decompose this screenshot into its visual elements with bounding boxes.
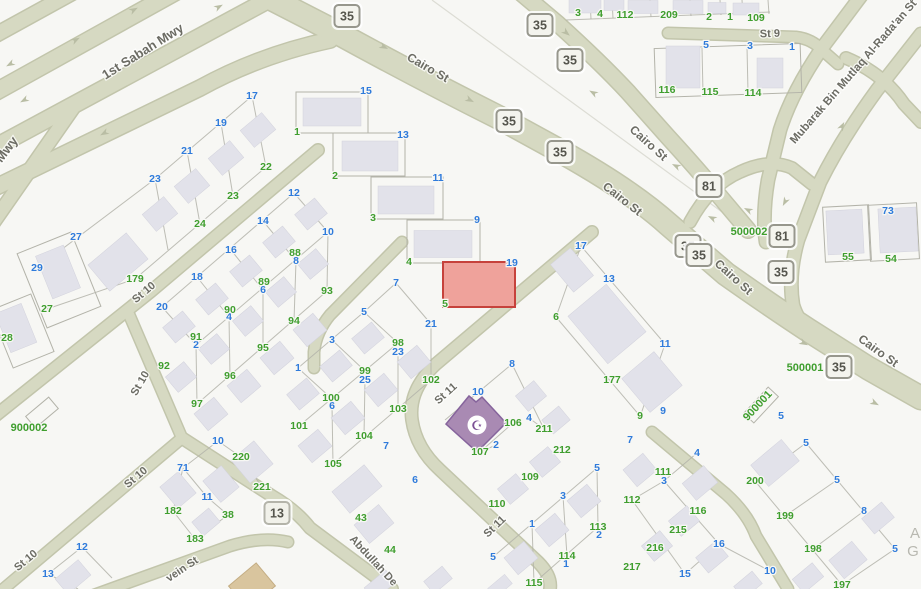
building-footprint	[826, 209, 864, 255]
route-shield-35: 35	[333, 4, 361, 29]
parcel-number-blue: 73	[882, 205, 894, 217]
parcel-number-blue: 19	[215, 117, 227, 129]
parcel-number-green: 112	[617, 9, 634, 21]
svg-text:35: 35	[340, 10, 354, 24]
parcel-number-blue: 17	[246, 90, 258, 102]
parcel-number-blue: 23	[149, 173, 161, 185]
parcel-number-blue: 5	[361, 306, 367, 318]
parcel-number-green: 115	[526, 577, 543, 589]
parcel-number-green: 92	[158, 360, 170, 372]
parcel-number-blue: 18	[191, 271, 203, 283]
parcel-number-blue: 29	[31, 262, 43, 274]
parcel-number-green: 9	[637, 410, 643, 422]
partial-labels-layer: AG	[907, 525, 920, 560]
parcel-number-blue: 13	[42, 568, 54, 580]
route-shield-35: 35	[767, 260, 795, 285]
parcel-number-blue: 5	[892, 543, 898, 555]
parcel-number-green: 116	[659, 84, 676, 96]
parcel-number-green: 198	[804, 543, 822, 555]
parcel-number-blue: 12	[288, 187, 300, 199]
block-id-label: 500001	[787, 362, 824, 374]
parcel-number-green: 110	[489, 498, 506, 510]
parcel-number-blue: 1	[529, 518, 535, 530]
parcel-number-green: 96	[224, 370, 236, 382]
parcel-number-green: 217	[623, 561, 641, 573]
parcel-number-green: 200	[746, 475, 764, 487]
parcel-number-green: 101	[290, 420, 308, 432]
parcel-number-green: 106	[504, 417, 522, 429]
parcel-number-green: 91	[190, 331, 202, 343]
parcel-number-green: 211	[536, 423, 553, 435]
parcel-number-blue: 5	[490, 551, 496, 563]
parcel-number-blue: 15	[360, 85, 372, 97]
parcel-number-green: 109	[521, 471, 539, 483]
route-shield-35: 35	[685, 243, 713, 268]
parcel-number-blue: 10	[472, 386, 484, 398]
svg-text:35: 35	[533, 19, 547, 33]
block-id-label: 900002	[11, 422, 48, 434]
parcel-number-blue: 15	[679, 568, 691, 580]
parcel-number-blue: 8	[861, 505, 867, 517]
parcel-number-blue: 27	[70, 231, 82, 243]
parcel-number-green: 38	[222, 509, 234, 521]
parcel-number-green: 107	[471, 446, 489, 458]
parcel-number-green: 177	[603, 374, 621, 386]
svg-text:35: 35	[563, 54, 577, 68]
parcel-number-blue: 6	[412, 474, 418, 486]
parcel-number-blue: 8	[509, 358, 515, 370]
parcel-number-green: 97	[191, 398, 203, 410]
parcel-number-blue: 13	[397, 129, 409, 141]
route-shield-35: 35	[526, 13, 554, 38]
parcel-number-green: 212	[553, 444, 571, 456]
building-footprint	[414, 231, 472, 258]
parcel-number-green: 111	[655, 466, 672, 478]
parcel-number-green: 3	[370, 212, 376, 224]
svg-text:35: 35	[692, 249, 706, 263]
parcel-number-green: 1	[294, 126, 300, 138]
parcel-number-blue: 3	[329, 334, 335, 346]
parcel-number-green: 93	[321, 285, 333, 297]
parcel-number-blue: 9	[474, 214, 480, 226]
parcel-number-green: 3	[575, 7, 581, 19]
parcel-number-green: 100	[322, 392, 340, 404]
parcel-number-green: 4	[406, 256, 412, 268]
parcel-number-green: 220	[232, 451, 250, 463]
parcel-number-blue: 3	[560, 490, 566, 502]
parcel-number-green: 115	[702, 86, 719, 98]
parcel-number-blue: 4	[694, 447, 700, 459]
parcel-number-blue: 5	[778, 410, 784, 422]
svg-text:35: 35	[774, 266, 788, 280]
partial-district-label: G	[907, 543, 919, 560]
route-shield-35: 35	[546, 140, 574, 165]
parcel-number-green: 103	[389, 403, 407, 415]
parcel-number-green: 6	[553, 311, 559, 323]
map-view[interactable]: ☪ 353535353535353535818113 1st Sabah Mwy…	[0, 0, 921, 589]
parcel-number-green: 89	[258, 276, 270, 288]
parcel-number-green: 99	[359, 365, 371, 377]
parcel-number-blue: 5	[703, 39, 709, 51]
svg-text:81: 81	[702, 180, 716, 194]
parcel-number-green: 4	[597, 8, 603, 20]
parcel-number-blue: 9	[660, 405, 666, 417]
parcel-number-green: 44	[384, 544, 396, 556]
parcel-number-blue: 21	[425, 318, 437, 330]
parcel-number-green: 104	[355, 430, 373, 442]
parcel-number-green: 221	[253, 481, 271, 493]
parcel-number-blue: 7	[393, 277, 399, 289]
parcel-number-green: 54	[885, 253, 897, 265]
parcel-number-green: 22	[260, 161, 272, 173]
parcel-number-blue: 2	[493, 439, 499, 451]
route-shield-35: 35	[495, 109, 523, 134]
parcel-number-green: 105	[324, 458, 342, 470]
parcel-number-green: 114	[559, 550, 576, 562]
parcel-number-green: 215	[669, 524, 687, 536]
parcel-number-green: 182	[164, 505, 182, 517]
svg-text:35: 35	[502, 115, 516, 129]
parcel-number-blue: 21	[181, 145, 193, 157]
route-shield-81: 81	[695, 174, 723, 199]
parcel-number-blue: 11	[659, 338, 670, 350]
parcel-number-blue: 20	[156, 301, 168, 313]
parcel-number-green: 199	[776, 510, 794, 522]
parcel-number-green: 113	[590, 521, 607, 533]
parcel-number-green: 90	[224, 304, 236, 316]
parcel-number-blue: 14	[257, 215, 269, 227]
parcel-number-green: 114	[745, 87, 762, 99]
parcel-number-green: 183	[186, 533, 204, 545]
parcel-number-blue: 13	[603, 273, 615, 285]
building-footprint	[342, 141, 398, 171]
building-footprint	[666, 46, 700, 88]
parcel-number-green: 94	[288, 315, 300, 327]
svg-text:35: 35	[553, 146, 567, 160]
parcel-number-green: 28	[1, 332, 13, 344]
parcel-number-blue: 5	[594, 462, 600, 474]
route-shield-35: 35	[825, 355, 853, 380]
parcel-number-green: 2	[332, 170, 338, 182]
parcel-number-green: 24	[194, 218, 206, 230]
parcel-number-green: 55	[842, 251, 854, 263]
svg-text:81: 81	[775, 230, 789, 244]
parcel-number-green: 23	[227, 190, 239, 202]
parcel-number-blue: 10	[764, 565, 776, 577]
parcel-number-green: 109	[747, 12, 765, 24]
parcel-number-blue: 10	[322, 226, 334, 238]
mosque-crescent-icon: ☪	[471, 419, 483, 434]
parcel-number-green: 2	[706, 11, 712, 23]
route-shield-35: 35	[556, 48, 584, 73]
route-shield-81: 81	[768, 224, 796, 249]
parcel-number-green: 5	[442, 298, 448, 310]
parcel-number-green: 216	[646, 542, 664, 554]
highlighted-parcel[interactable]	[443, 262, 515, 307]
parcel-number-blue: 16	[225, 244, 237, 256]
parcel-number-green: 27	[41, 303, 53, 315]
parcel-number-green: 197	[833, 579, 851, 589]
parcel-number-green: 116	[690, 505, 707, 517]
parcel-number-blue: 1	[295, 362, 301, 374]
parcel-number-green: 1	[727, 11, 733, 23]
parcel-number-blue: 4	[526, 412, 532, 424]
parcel-number-blue: 10	[212, 435, 224, 447]
building-footprint	[378, 186, 434, 214]
parcel-number-green: 98	[392, 337, 404, 349]
parcel-number-blue: 1	[789, 41, 795, 53]
partial-district-label: A	[910, 525, 920, 542]
parcel-number-green: 95	[257, 342, 269, 354]
parcel-number-blue: 5	[803, 437, 809, 449]
parcel-number-blue: 11	[432, 172, 443, 184]
route-shield-13: 13	[263, 501, 291, 526]
parcel-number-blue: 5	[834, 474, 840, 486]
svg-text:35: 35	[832, 361, 846, 375]
svg-text:13: 13	[270, 507, 284, 521]
map-canvas[interactable]: ☪ 353535353535353535818113 1st Sabah Mwy…	[0, 0, 921, 589]
parcel-number-blue: 11	[201, 491, 212, 503]
parcel-number-green: 112	[624, 494, 641, 506]
block-id-label: 500002	[731, 226, 768, 238]
parcel-number-green: 209	[660, 9, 678, 21]
street-label: St 9	[760, 28, 781, 41]
building-footprint	[757, 58, 783, 88]
parcel-number-blue: 71	[177, 462, 189, 474]
parcel-number-green: 102	[422, 374, 440, 386]
building-footprint	[303, 98, 361, 126]
parcel-number-blue: 7	[627, 434, 633, 446]
parcel-number-blue: 7	[383, 440, 389, 452]
parcel-number-blue: 16	[713, 538, 725, 550]
parcel-number-blue: 3	[747, 40, 753, 52]
parcel-number-green: 179	[126, 273, 144, 285]
parcel-number-blue: 19	[506, 257, 518, 269]
parcel-number-blue: 17	[575, 240, 587, 252]
parcel-number-blue: 12	[76, 541, 88, 553]
parcel-number-green: 43	[355, 512, 367, 524]
parcel-number-green: 88	[289, 247, 301, 259]
